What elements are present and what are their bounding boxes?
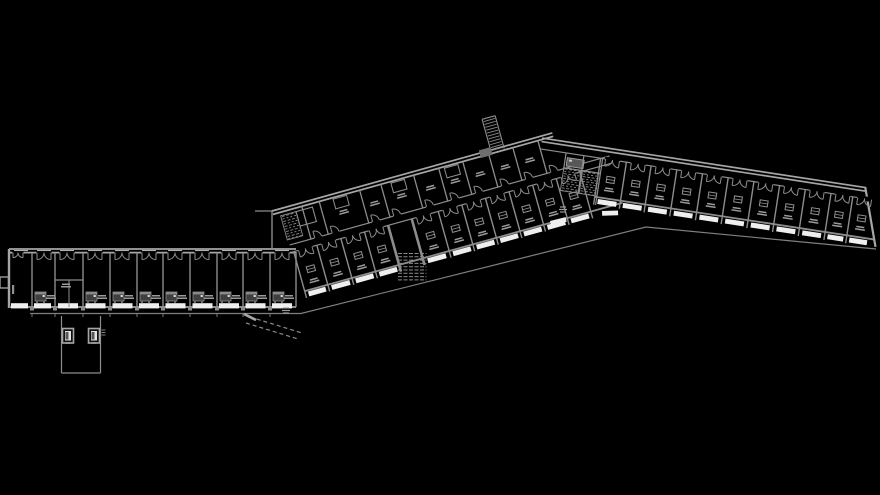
diagonal-wing xyxy=(263,89,624,301)
floor-plan-drawing xyxy=(0,0,880,495)
left-wing xyxy=(9,249,296,317)
floor-plan-screenshot xyxy=(0,0,880,495)
elevator-lobby xyxy=(62,316,106,373)
balcony-rail xyxy=(30,227,876,314)
exterior-path xyxy=(244,314,302,339)
